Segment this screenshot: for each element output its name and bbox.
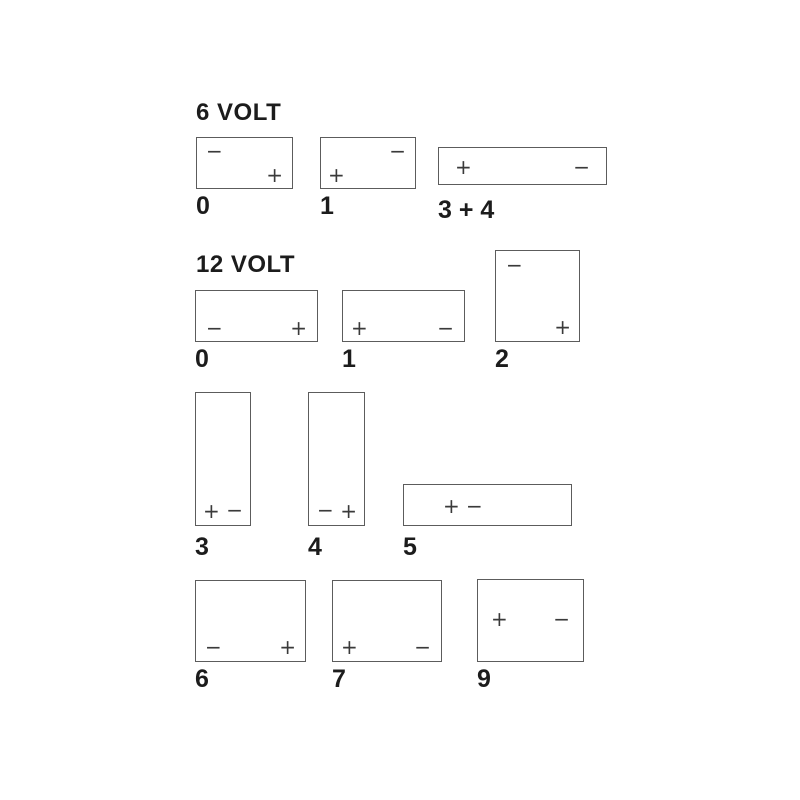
battery-box: + − — [438, 147, 607, 185]
minus-terminal: − — [206, 318, 223, 338]
battery-box: − + — [195, 290, 318, 342]
section-title-12-volt: 12 VOLT — [196, 253, 295, 277]
plus-terminal: + — [340, 501, 357, 521]
section-title-6-volt: 6 VOLT — [196, 101, 281, 125]
battery-box: − + — [196, 137, 293, 189]
battery-label: 1 — [342, 347, 465, 372]
battery-label: 5 — [403, 535, 572, 560]
battery-box: − + — [320, 137, 416, 189]
battery-label: 3 + 4 — [438, 198, 607, 223]
plus-terminal: + — [491, 609, 508, 629]
plus-terminal: + — [341, 637, 358, 657]
minus-terminal: − — [506, 255, 523, 275]
plus-terminal: + — [554, 317, 571, 337]
battery-label: 9 — [477, 667, 584, 692]
battery-label: 4 — [308, 535, 365, 560]
battery-12v-type-0: − + 0 — [195, 290, 318, 372]
battery-box: + − — [195, 392, 251, 526]
battery-box: − + — [195, 580, 306, 662]
minus-terminal: − — [414, 637, 431, 657]
minus-terminal: − — [437, 318, 454, 338]
battery-label: 7 — [332, 667, 442, 692]
plus-terminal: + — [279, 637, 296, 657]
battery-label: 0 — [195, 347, 318, 372]
battery-box: + − — [477, 579, 584, 662]
battery-12v-type-4: − + 4 — [308, 392, 365, 560]
battery-box: + − — [332, 580, 442, 662]
battery-12v-type-9: + − 9 — [477, 579, 584, 692]
plus-terminal: + — [455, 157, 472, 177]
plus-terminal: + — [443, 496, 460, 516]
battery-12v-type-6: − + 6 — [195, 580, 306, 692]
minus-terminal: − — [466, 496, 483, 516]
battery-12v-type-2: − + 2 — [495, 250, 580, 372]
plus-terminal: + — [266, 165, 283, 185]
battery-6v-type-3-4: + − 3 + 4 — [438, 147, 607, 223]
minus-terminal: − — [317, 500, 334, 520]
minus-terminal: − — [573, 157, 590, 177]
battery-12v-type-5: + − 5 — [403, 484, 572, 560]
battery-label: 1 — [320, 194, 416, 219]
minus-terminal: − — [553, 609, 570, 629]
battery-12v-type-7: + − 7 — [332, 580, 442, 692]
battery-6v-type-1: − + 1 — [320, 137, 416, 219]
battery-6v-type-0: − + 0 — [196, 137, 293, 219]
minus-terminal: − — [206, 141, 223, 161]
battery-label: 0 — [196, 194, 293, 219]
plus-terminal: + — [351, 318, 368, 338]
plus-terminal: + — [290, 318, 307, 338]
battery-box: + − — [342, 290, 465, 342]
battery-label: 2 — [495, 347, 580, 372]
plus-terminal: + — [203, 501, 220, 521]
battery-box: + − — [403, 484, 572, 526]
battery-12v-type-1: + − 1 — [342, 290, 465, 372]
battery-label: 6 — [195, 667, 306, 692]
battery-label: 3 — [195, 535, 251, 560]
battery-layout-diagram: 6 VOLT − + 0 − + 1 + − 3 + 4 12 VOLT − +… — [0, 0, 800, 800]
battery-box: − + — [495, 250, 580, 342]
plus-terminal: + — [328, 165, 345, 185]
battery-12v-type-3: + − 3 — [195, 392, 251, 560]
minus-terminal: − — [205, 637, 222, 657]
battery-box: − + — [308, 392, 365, 526]
minus-terminal: − — [226, 500, 243, 520]
minus-terminal: − — [389, 141, 406, 161]
